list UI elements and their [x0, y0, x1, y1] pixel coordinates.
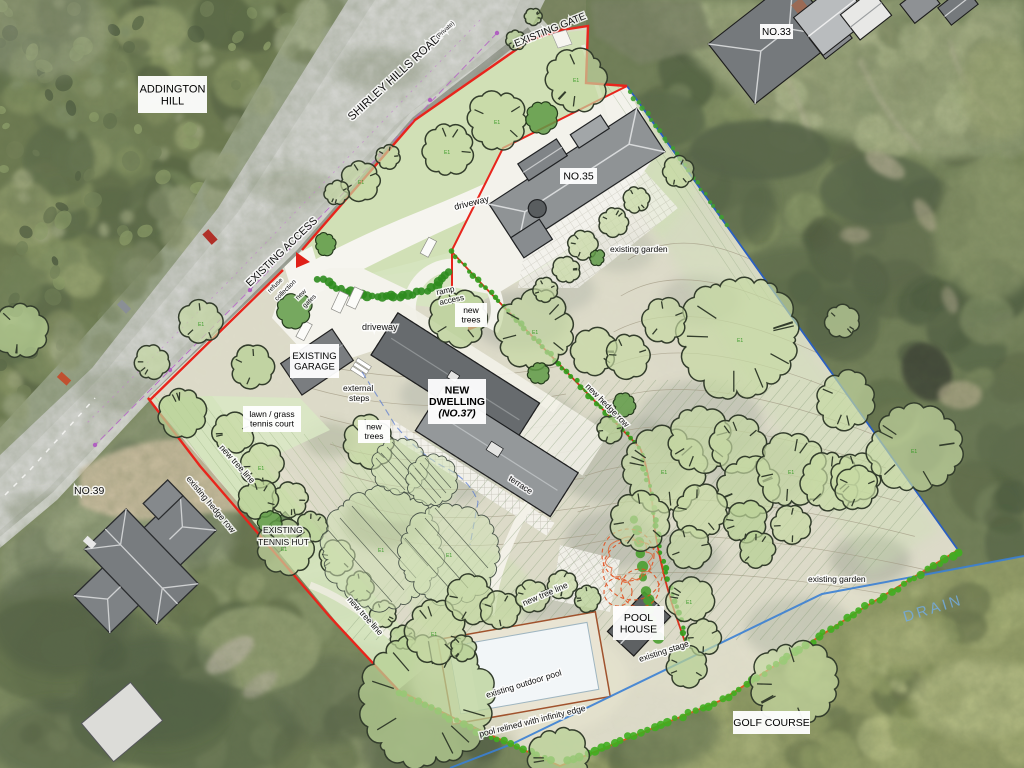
svg-text:E1: E1	[532, 330, 538, 336]
svg-text:E1: E1	[573, 78, 579, 84]
svg-text:POOL: POOL	[624, 612, 653, 624]
svg-text:E1: E1	[661, 470, 667, 476]
svg-text:trees: trees	[365, 431, 384, 441]
svg-text:GOLF COURSE: GOLF COURSE	[733, 717, 809, 729]
svg-text:steps: steps	[349, 393, 369, 403]
svg-text:GARAGE: GARAGE	[294, 362, 335, 373]
svg-text:E1: E1	[281, 547, 287, 553]
svg-text:E1: E1	[494, 120, 500, 126]
svg-text:EXISTING: EXISTING	[292, 351, 336, 362]
svg-text:E1: E1	[444, 150, 450, 156]
svg-text:NO.35: NO.35	[563, 171, 594, 183]
svg-text:trees: trees	[462, 315, 481, 325]
svg-text:E1: E1	[686, 600, 692, 606]
svg-text:existing garden: existing garden	[808, 574, 866, 584]
svg-text:NEW: NEW	[445, 385, 470, 397]
svg-text:NO.39: NO.39	[74, 485, 105, 497]
svg-text:driveway: driveway	[362, 322, 398, 332]
svg-text:existing garden: existing garden	[610, 244, 668, 254]
svg-text:E1: E1	[258, 466, 264, 472]
svg-text:external: external	[343, 383, 373, 393]
svg-text:(NO.37): (NO.37)	[438, 408, 476, 420]
svg-text:E1: E1	[911, 449, 917, 455]
svg-text:DWELLING: DWELLING	[429, 396, 485, 408]
svg-text:HOUSE: HOUSE	[620, 623, 657, 635]
svg-text:NO.33: NO.33	[762, 27, 791, 38]
svg-text:E1: E1	[737, 338, 743, 344]
svg-text:new: new	[463, 305, 479, 315]
svg-text:EXISTING: EXISTING	[263, 525, 303, 535]
svg-text:E1: E1	[198, 322, 204, 328]
svg-text:new: new	[366, 422, 382, 432]
svg-text:lawn / grass: lawn / grass	[249, 409, 294, 419]
svg-text:TENNIS HUT: TENNIS HUT	[258, 537, 309, 547]
svg-text:E1: E1	[431, 632, 437, 638]
svg-text:E1: E1	[358, 180, 364, 186]
svg-text:tennis court: tennis court	[250, 419, 295, 429]
svg-text:ADDINGTON: ADDINGTON	[140, 83, 206, 95]
svg-text:E1: E1	[788, 470, 794, 476]
svg-text:HILL: HILL	[161, 95, 184, 107]
svg-text:E1: E1	[378, 548, 384, 554]
svg-text:E1: E1	[446, 553, 452, 559]
